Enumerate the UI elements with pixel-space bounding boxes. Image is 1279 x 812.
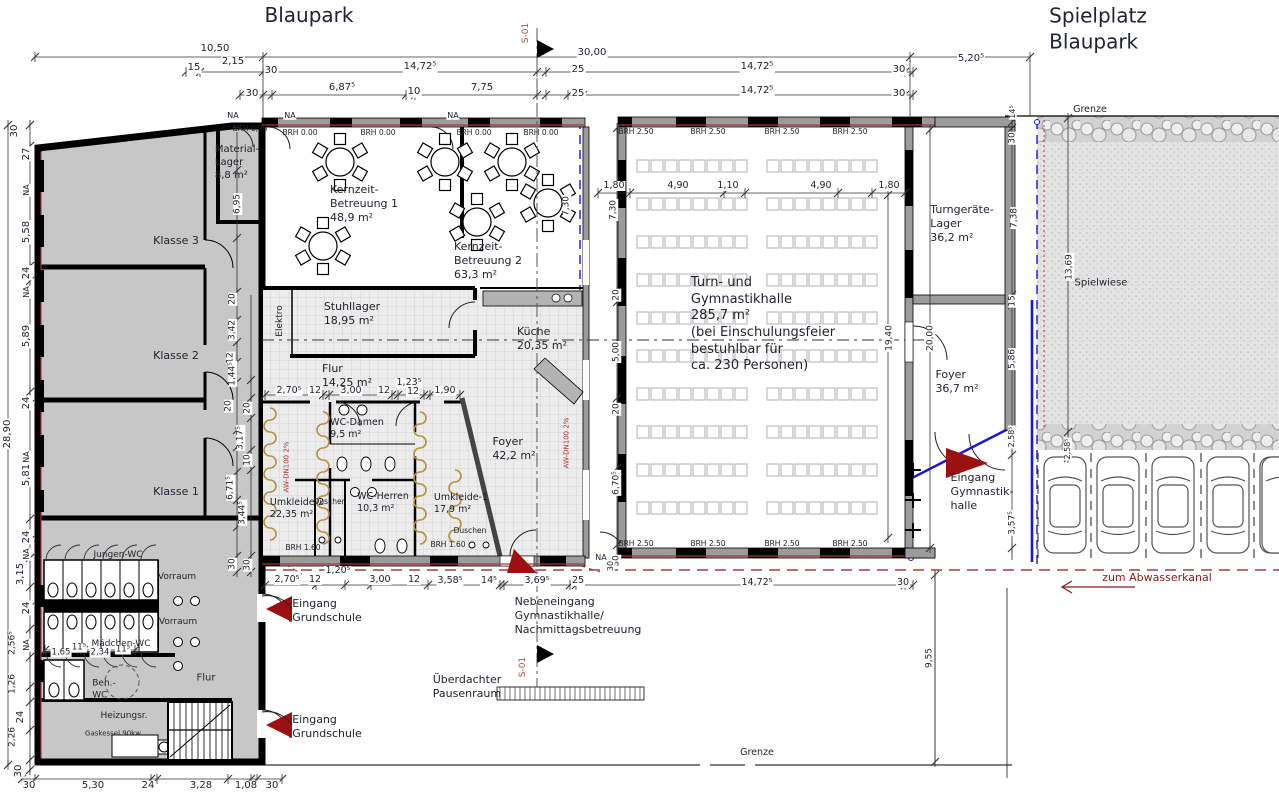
entrance-arrows: [262, 549, 537, 738]
floor-plan-page: BlauparkSpielplatz Blaupark10,5030,005,2…: [0, 0, 1279, 812]
right-wing: [905, 117, 1015, 558]
floor-plan-drawing: [0, 0, 1279, 812]
parking-area: [1038, 453, 1279, 559]
spielwiese-area: [1005, 116, 1279, 450]
central-block: [233, 118, 624, 566]
pausenraum-hatch: [497, 687, 644, 700]
school-wing: [36, 126, 290, 762]
round-tables: [296, 134, 576, 275]
entrance-arrow-gym: [946, 448, 988, 478]
